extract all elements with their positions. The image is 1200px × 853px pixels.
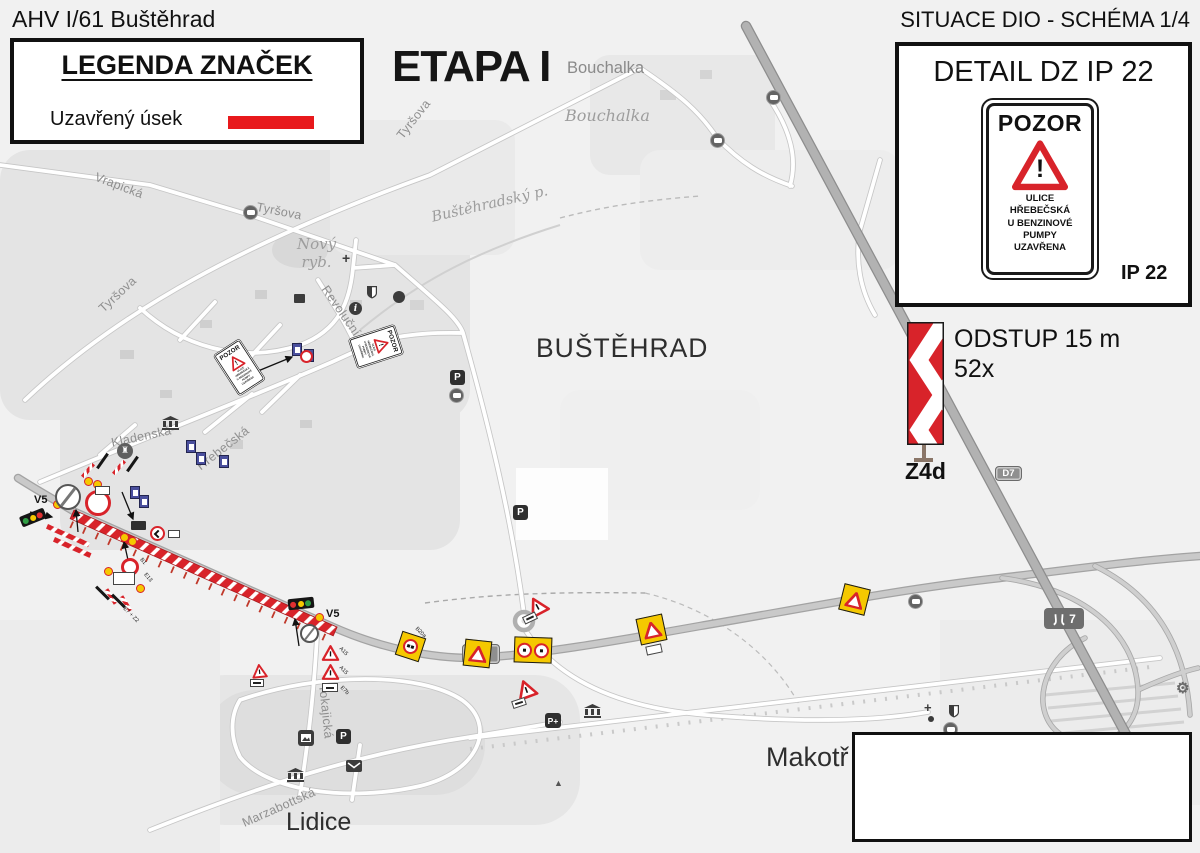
ip22-sign-text: ULICE HŘEBEČSKÁ U BENZINOVÉ PUMPY UZAVŘE… xyxy=(1008,193,1073,255)
ip22-sign-header: POZOR xyxy=(998,110,1082,137)
museum-icon xyxy=(162,416,179,430)
roadworks-triangle-sign xyxy=(322,645,339,661)
info-sign-blue xyxy=(196,452,206,465)
bus-stop-icon xyxy=(908,594,923,609)
d7-shield: D7 xyxy=(995,466,1022,481)
sign-plate xyxy=(95,486,110,495)
parking-plus-icon: P+ xyxy=(545,713,561,728)
monument-icon: ▲ xyxy=(554,778,563,788)
place-label-lidice: Lidice xyxy=(286,808,351,837)
ip22-line: PUMPY xyxy=(1008,230,1073,242)
roadworks-triangle-sign xyxy=(251,663,267,678)
gear-icon: ⚙ xyxy=(1176,679,1189,697)
viewpoint-icon xyxy=(393,291,405,303)
place-label-bouchalka: Bouchalka xyxy=(567,59,644,78)
info-sign-blue xyxy=(219,455,229,468)
blank-title-box xyxy=(852,732,1192,842)
no-stopping-sign xyxy=(300,624,319,643)
poi-dot xyxy=(928,716,934,722)
v5-marker-label: V5 xyxy=(326,608,339,620)
dio-situation-map-page: AHV I/61 Buštěhrad SITUACE DIO - SCHÉMA … xyxy=(0,0,1200,853)
exclamation-glyph: ! xyxy=(1011,155,1069,184)
warning-lamp-icon xyxy=(84,477,93,486)
legend-panel: LEGENDA ZNAČEK Uzavřený úsek xyxy=(10,38,364,144)
church-cross-icon: + xyxy=(342,250,350,266)
warning-lamp-icon xyxy=(136,584,145,593)
truck-icon xyxy=(131,521,146,530)
detail-panel-title: DETAIL DZ IP 22 xyxy=(899,56,1188,89)
bus-stop-icon xyxy=(449,388,464,403)
motorway-7-badge: 7 xyxy=(1044,608,1084,629)
warning-board xyxy=(635,613,667,645)
legend-closed-section-label: Uzavřený úsek xyxy=(50,108,182,131)
ip22-code-label: IP 22 xyxy=(1121,262,1167,285)
ip22-line: UZAVŘENA xyxy=(1008,242,1073,254)
sign-plate xyxy=(168,530,180,538)
roadworks-triangle-sign xyxy=(322,664,339,680)
parking-icon: P xyxy=(336,729,351,744)
closed-section-swatch xyxy=(228,116,314,129)
area-label-bouchalka: Bouchalka xyxy=(565,106,650,125)
no-entry-sign xyxy=(300,350,313,363)
warning-board xyxy=(463,639,493,669)
building-icon xyxy=(294,294,305,303)
z4d-offset-note: ODSTUP 15 m xyxy=(954,325,1120,354)
double-restriction-board xyxy=(514,636,553,663)
detail-dz-panel: DETAIL DZ IP 22 POZOR ! ULICE HŘEBEČSKÁ … xyxy=(895,42,1192,307)
bus-stop-icon xyxy=(243,205,258,220)
no-stopping-sign xyxy=(55,484,81,510)
church-cross-icon: + xyxy=(924,700,932,715)
v5-marker-label: V5 xyxy=(34,494,47,506)
motorway-icon xyxy=(1052,612,1066,626)
page-title: AHV I/61 Buštěhrad xyxy=(12,6,215,33)
museum-icon xyxy=(584,704,601,718)
v5-signal-dot xyxy=(315,613,324,622)
info-sign-blue xyxy=(139,495,149,508)
legend-title: LEGENDA ZNAČEK xyxy=(14,50,360,81)
ip22-line: ULICE xyxy=(1008,193,1073,205)
z4d-chevron-panel xyxy=(907,322,944,445)
post-office-icon xyxy=(346,760,362,772)
place-label-makotrasy: Makotř xyxy=(766,742,849,773)
ip22-line: U BENZINOVÉ xyxy=(1008,218,1073,230)
shield-icon xyxy=(948,704,960,718)
ip22-line: HŘEBEČSKÁ xyxy=(1008,205,1073,217)
bus-stop-icon xyxy=(766,90,781,105)
warning-lamp-icon xyxy=(104,567,113,576)
z4d-count-note: 52x xyxy=(954,355,994,384)
schema-title: SITUACE DIO - SCHÉMA 1/4 xyxy=(900,7,1190,33)
bus-stop-icon xyxy=(710,133,725,148)
z4d-label: Z4d xyxy=(905,458,946,485)
no-left-turn-sign xyxy=(150,526,165,541)
place-label-bustehrad: BUŠTĚHRAD xyxy=(536,333,708,364)
parking-icon: P xyxy=(513,505,528,520)
sign-plate xyxy=(322,683,338,692)
ip22-sign: POZOR ! ULICE HŘEBEČSKÁ U BENZINOVÉ PUMP… xyxy=(981,98,1099,280)
motorway-number: 7 xyxy=(1069,612,1076,626)
parking-icon: P xyxy=(450,370,465,385)
sign-plate xyxy=(113,572,135,585)
warning-triangle-icon: ! xyxy=(1011,139,1069,191)
warning-lamp-icon xyxy=(128,537,137,546)
info-sign-blue xyxy=(186,440,196,453)
water-label-novy-rybnik: Nový ryb. xyxy=(297,235,336,271)
gallery-icon xyxy=(298,730,314,746)
stage-label: ETAPA I xyxy=(392,42,550,92)
castle-icon: ♜ xyxy=(117,443,133,459)
info-point-icon: i xyxy=(349,302,362,315)
shield-icon xyxy=(366,285,378,299)
sign-plate xyxy=(250,679,264,687)
museum-icon xyxy=(287,768,304,782)
